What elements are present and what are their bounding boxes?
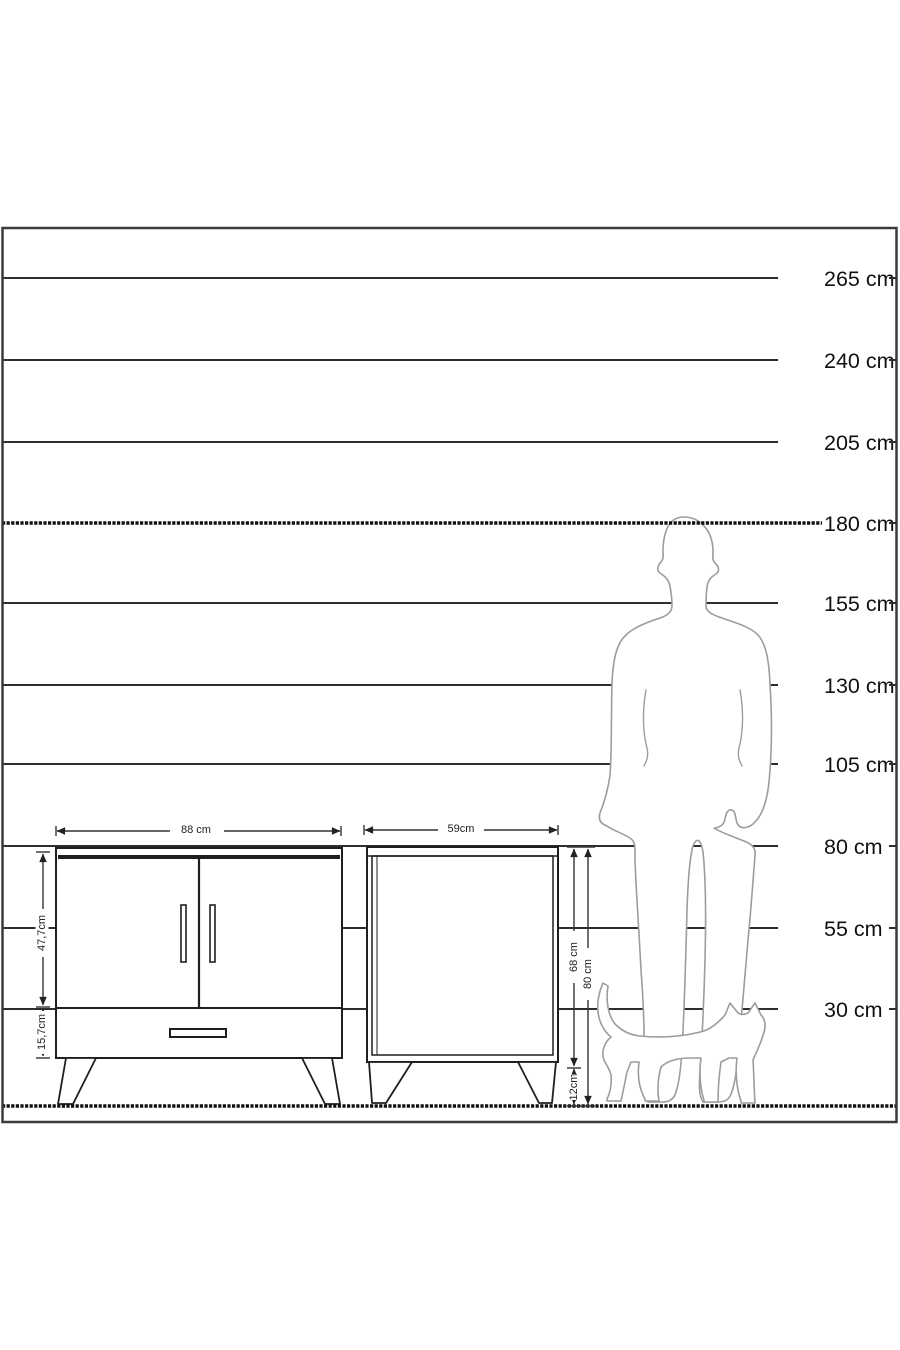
- sideboard-left-door-handle: [181, 905, 186, 962]
- sideboard-right-door-handle: [210, 905, 215, 962]
- diagram-stage: 88 cm 59cm 47,7cm 15,7cm 68 cm 80 cm 12c…: [0, 0, 900, 1350]
- nightstand-drawing: [367, 847, 558, 1103]
- nightstand-right-leg: [518, 1062, 556, 1103]
- dim-label-nightstand-width: 59cm: [448, 823, 475, 835]
- scale-label-240: 240 cm: [824, 349, 895, 373]
- dim-label-cabinet-width: 88 cm: [181, 824, 211, 836]
- dim-label-door-height: 47,7cm: [36, 915, 48, 951]
- dim-label-drawer-height: 15,7cm: [36, 1014, 48, 1050]
- scale-label-180: 180 cm: [824, 512, 895, 536]
- scale-label-105: 105 cm: [824, 753, 895, 777]
- dim-label-leg-height: 12cm: [568, 1074, 580, 1101]
- scale-label-80: 80 cm: [824, 835, 883, 859]
- scale-labels: 265 cm240 cm205 cm180 cm155 cm130 cm105 …: [824, 267, 897, 1022]
- sideboard-right-leg: [302, 1058, 340, 1104]
- sideboard-left-leg: [58, 1058, 96, 1104]
- scale-label-55: 55 cm: [824, 917, 883, 941]
- dim-label-body-height: 68 cm: [568, 942, 580, 972]
- scale-label-205: 205 cm: [824, 431, 895, 455]
- nightstand-left-leg: [369, 1062, 412, 1103]
- scale-label-265: 265 cm: [824, 267, 895, 291]
- scale-label-130: 130 cm: [824, 674, 895, 698]
- sideboard-drawer-handle: [170, 1029, 226, 1037]
- dimension-diagram: 88 cm 59cm 47,7cm 15,7cm 68 cm 80 cm 12c…: [0, 0, 900, 1350]
- scale-label-30: 30 cm: [824, 998, 883, 1022]
- sideboard-drawing: [56, 848, 342, 1104]
- dim-label-total-height: 80 cm: [582, 959, 594, 989]
- scale-label-155: 155 cm: [824, 592, 895, 616]
- nightstand-body: [367, 847, 558, 1062]
